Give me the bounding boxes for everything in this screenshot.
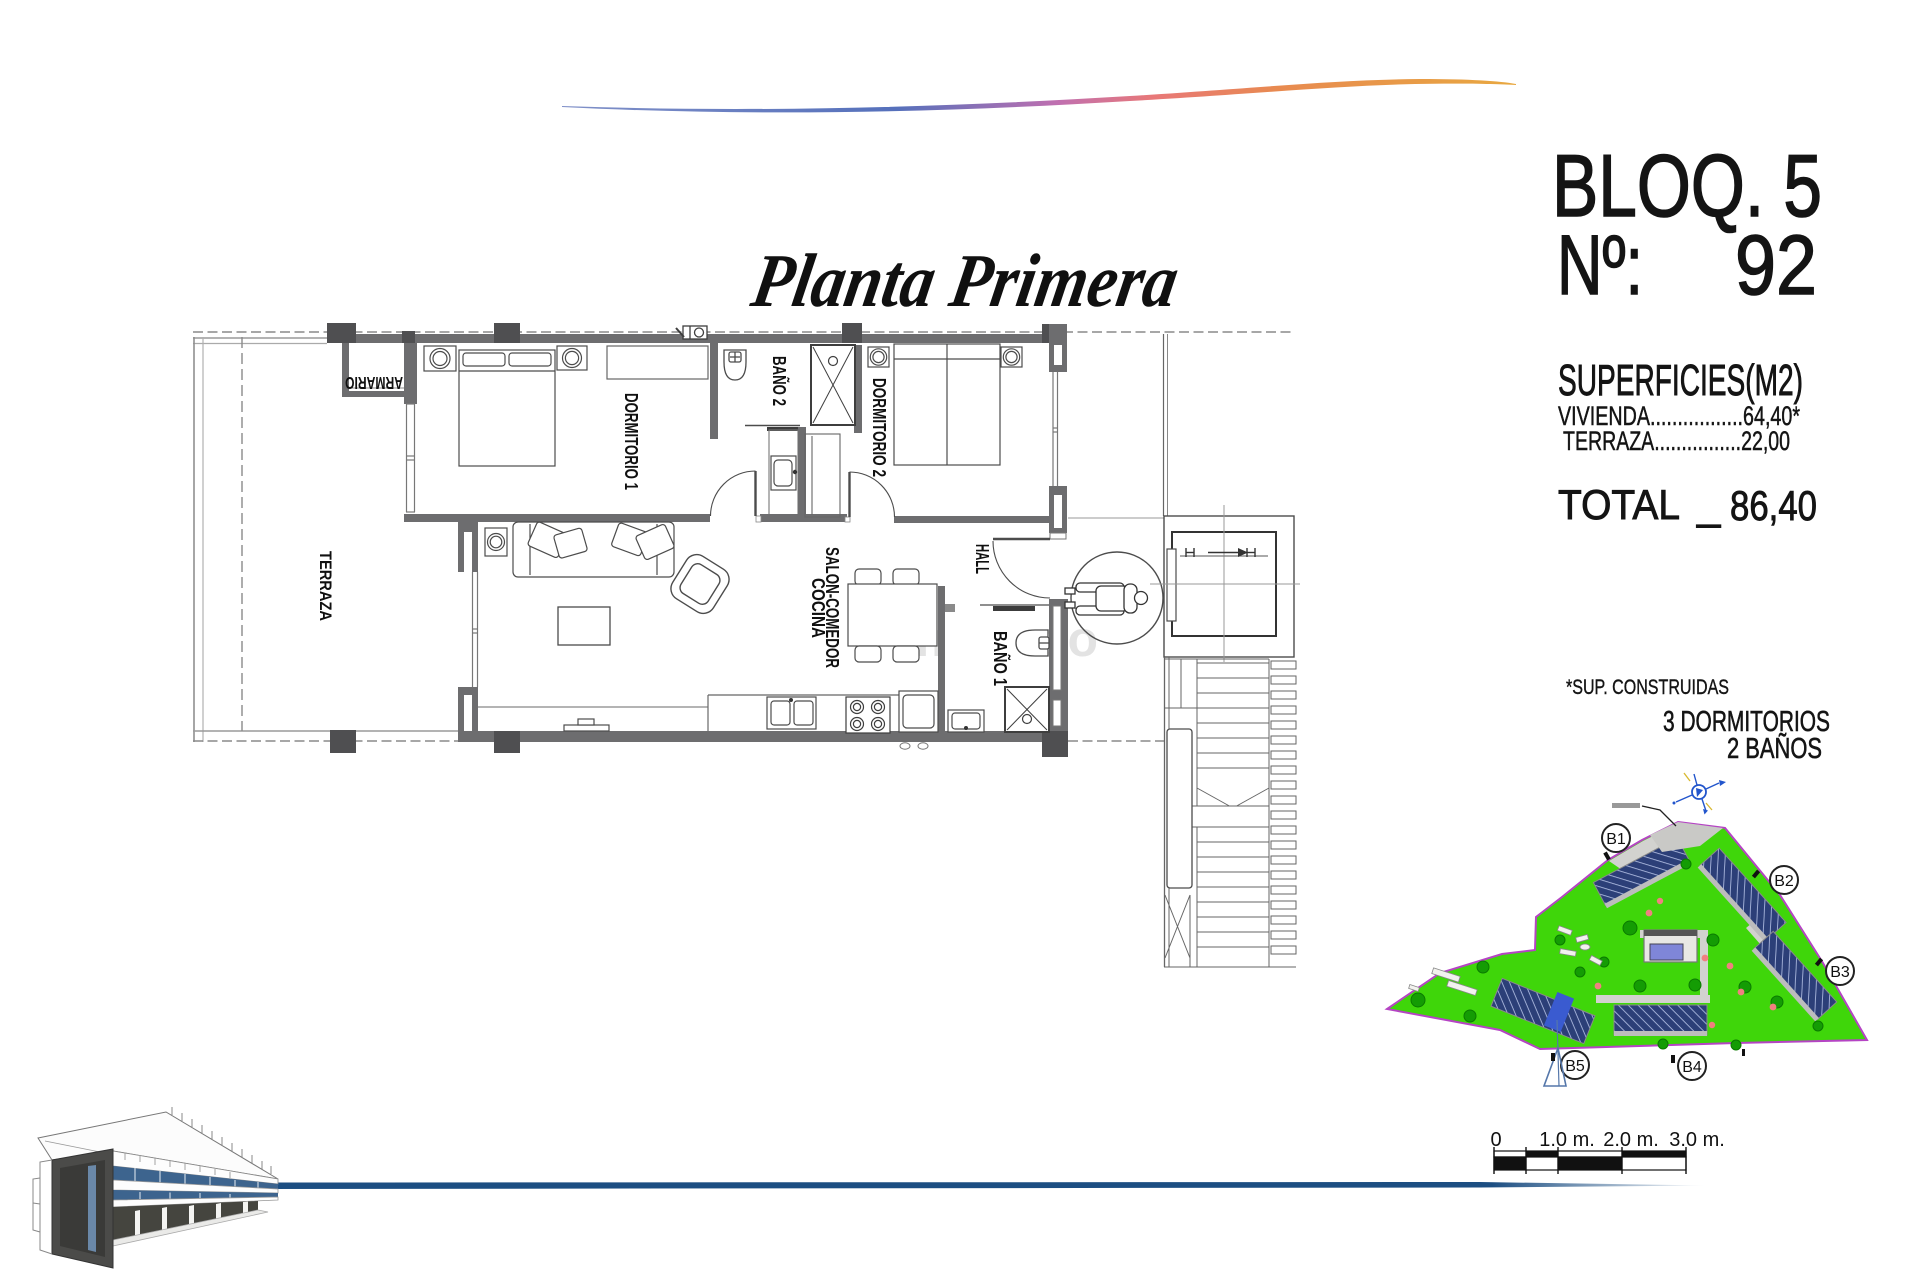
svg-text:0: 0 (1490, 1129, 1501, 1151)
svg-text:B1: B1 (1606, 831, 1626, 848)
svg-text:_: _ (1696, 481, 1721, 528)
svg-text:Planta Primera: Planta Primera (745, 239, 1185, 323)
svg-text:TERRAZA................22,00: TERRAZA................22,00 (1563, 426, 1790, 456)
svg-text:TOTAL: TOTAL (1558, 481, 1680, 528)
svg-text:92: 92 (1735, 218, 1817, 312)
svg-text:86,40: 86,40 (1730, 482, 1817, 529)
svg-text:TERRAZA: TERRAZA (316, 551, 334, 622)
svg-text:COCINA: COCINA (807, 578, 827, 638)
svg-text:DORMITORIO 1: DORMITORIO 1 (620, 393, 640, 490)
svg-text:B4: B4 (1682, 1059, 1702, 1076)
svg-text:BAÑO 2: BAÑO 2 (768, 356, 792, 406)
svg-text:1.0 m.: 1.0 m. (1539, 1129, 1595, 1151)
svg-text:B2: B2 (1774, 873, 1794, 890)
svg-text:ARMARIO: ARMARIO (345, 372, 403, 392)
svg-text:Nº:: Nº: (1557, 218, 1643, 312)
svg-text:2.0 m.: 2.0 m. (1603, 1129, 1659, 1151)
svg-text:BAÑO 1: BAÑO 1 (989, 631, 1013, 686)
svg-text:DORMITORIO 2: DORMITORIO 2 (868, 378, 888, 477)
svg-text:*SUP. CONSTRUIDAS: *SUP. CONSTRUIDAS (1566, 676, 1729, 699)
svg-text:3.0 m.: 3.0 m. (1669, 1129, 1725, 1151)
svg-text:B5: B5 (1565, 1058, 1585, 1075)
svg-text:SUPERFICIES(M2): SUPERFICIES(M2) (1558, 356, 1803, 405)
svg-text:2 BAÑOS: 2 BAÑOS (1727, 731, 1822, 765)
svg-text:HALL: HALL (971, 544, 991, 574)
svg-text:B3: B3 (1830, 964, 1850, 981)
